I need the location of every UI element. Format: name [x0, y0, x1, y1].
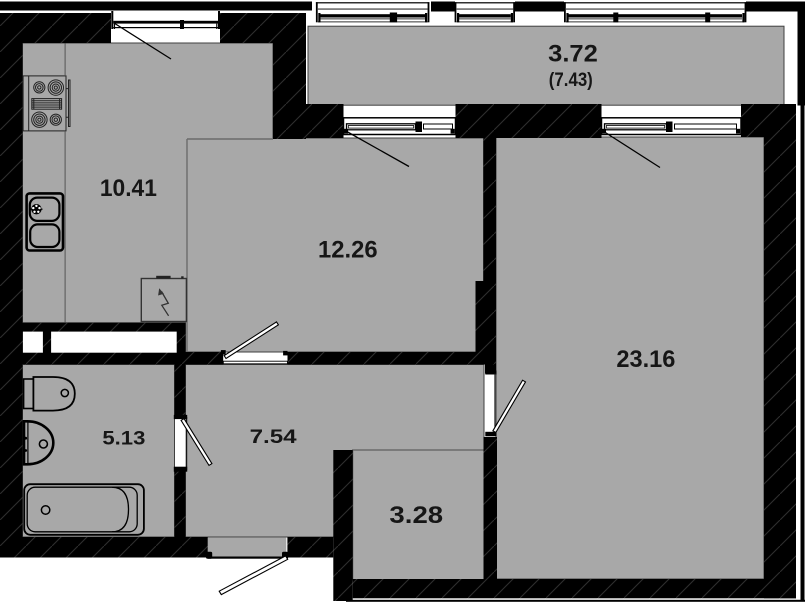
svg-text:7.54: 7.54: [250, 427, 298, 448]
svg-text:23.16: 23.16: [616, 346, 675, 373]
svg-text:12.26: 12.26: [318, 236, 378, 263]
svg-text:10.41: 10.41: [100, 175, 157, 202]
svg-text:(7.43): (7.43): [549, 70, 593, 91]
svg-text:5.13: 5.13: [102, 428, 145, 449]
svg-text:3.28: 3.28: [389, 502, 443, 529]
svg-text:3.72: 3.72: [548, 41, 598, 68]
